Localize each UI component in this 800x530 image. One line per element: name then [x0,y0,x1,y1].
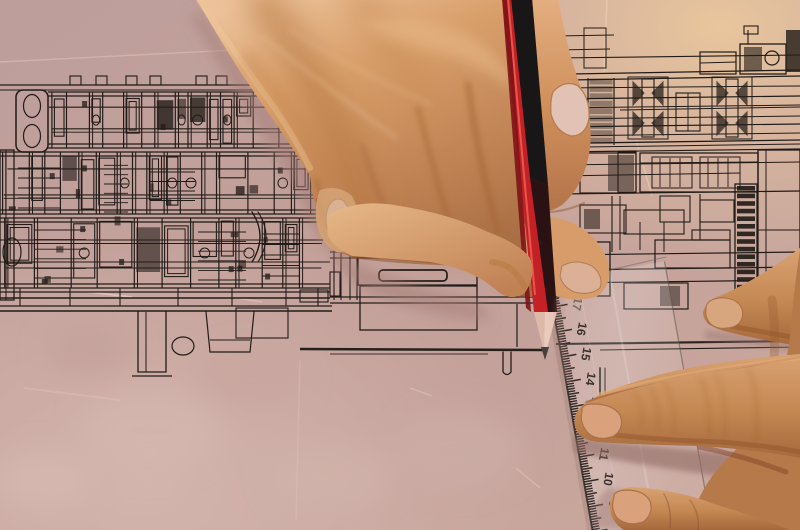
svg-text:15: 15 [578,346,594,362]
svg-text:10: 10 [600,471,616,487]
svg-text:14: 14 [583,371,599,387]
svg-text:16: 16 [574,321,590,337]
